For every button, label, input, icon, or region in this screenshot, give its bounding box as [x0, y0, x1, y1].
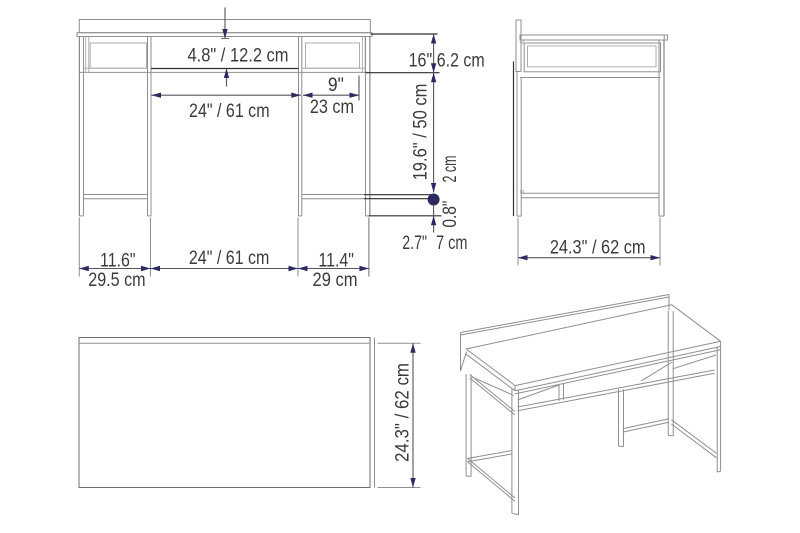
svg-text:23 cm: 23 cm [310, 96, 354, 118]
svg-text:29.5 cm: 29.5 cm [88, 269, 145, 291]
svg-text:24.3" / 62 cm: 24.3" / 62 cm [392, 363, 414, 462]
svg-text:2 cm: 2 cm [439, 156, 461, 183]
svg-text:24.3" / 62 cm: 24.3" / 62 cm [550, 237, 646, 259]
svg-text:2.7": 2.7" [402, 232, 427, 254]
svg-text:7 cm: 7 cm [436, 232, 468, 254]
svg-text:6.2 cm: 6.2 cm [437, 50, 485, 72]
svg-text:29 cm: 29 cm [313, 269, 358, 291]
svg-text:24" / 61 cm: 24" / 61 cm [189, 247, 269, 269]
svg-text:24" / 61 cm: 24" / 61 cm [189, 100, 270, 122]
svg-text:0.8": 0.8" [439, 200, 461, 227]
svg-text:4.8" / 12.2 cm: 4.8" / 12.2 cm [188, 45, 289, 67]
svg-text:16": 16" [409, 50, 433, 72]
svg-text:9": 9" [328, 74, 344, 96]
svg-text:19.6" / 50 cm: 19.6" / 50 cm [410, 84, 432, 181]
